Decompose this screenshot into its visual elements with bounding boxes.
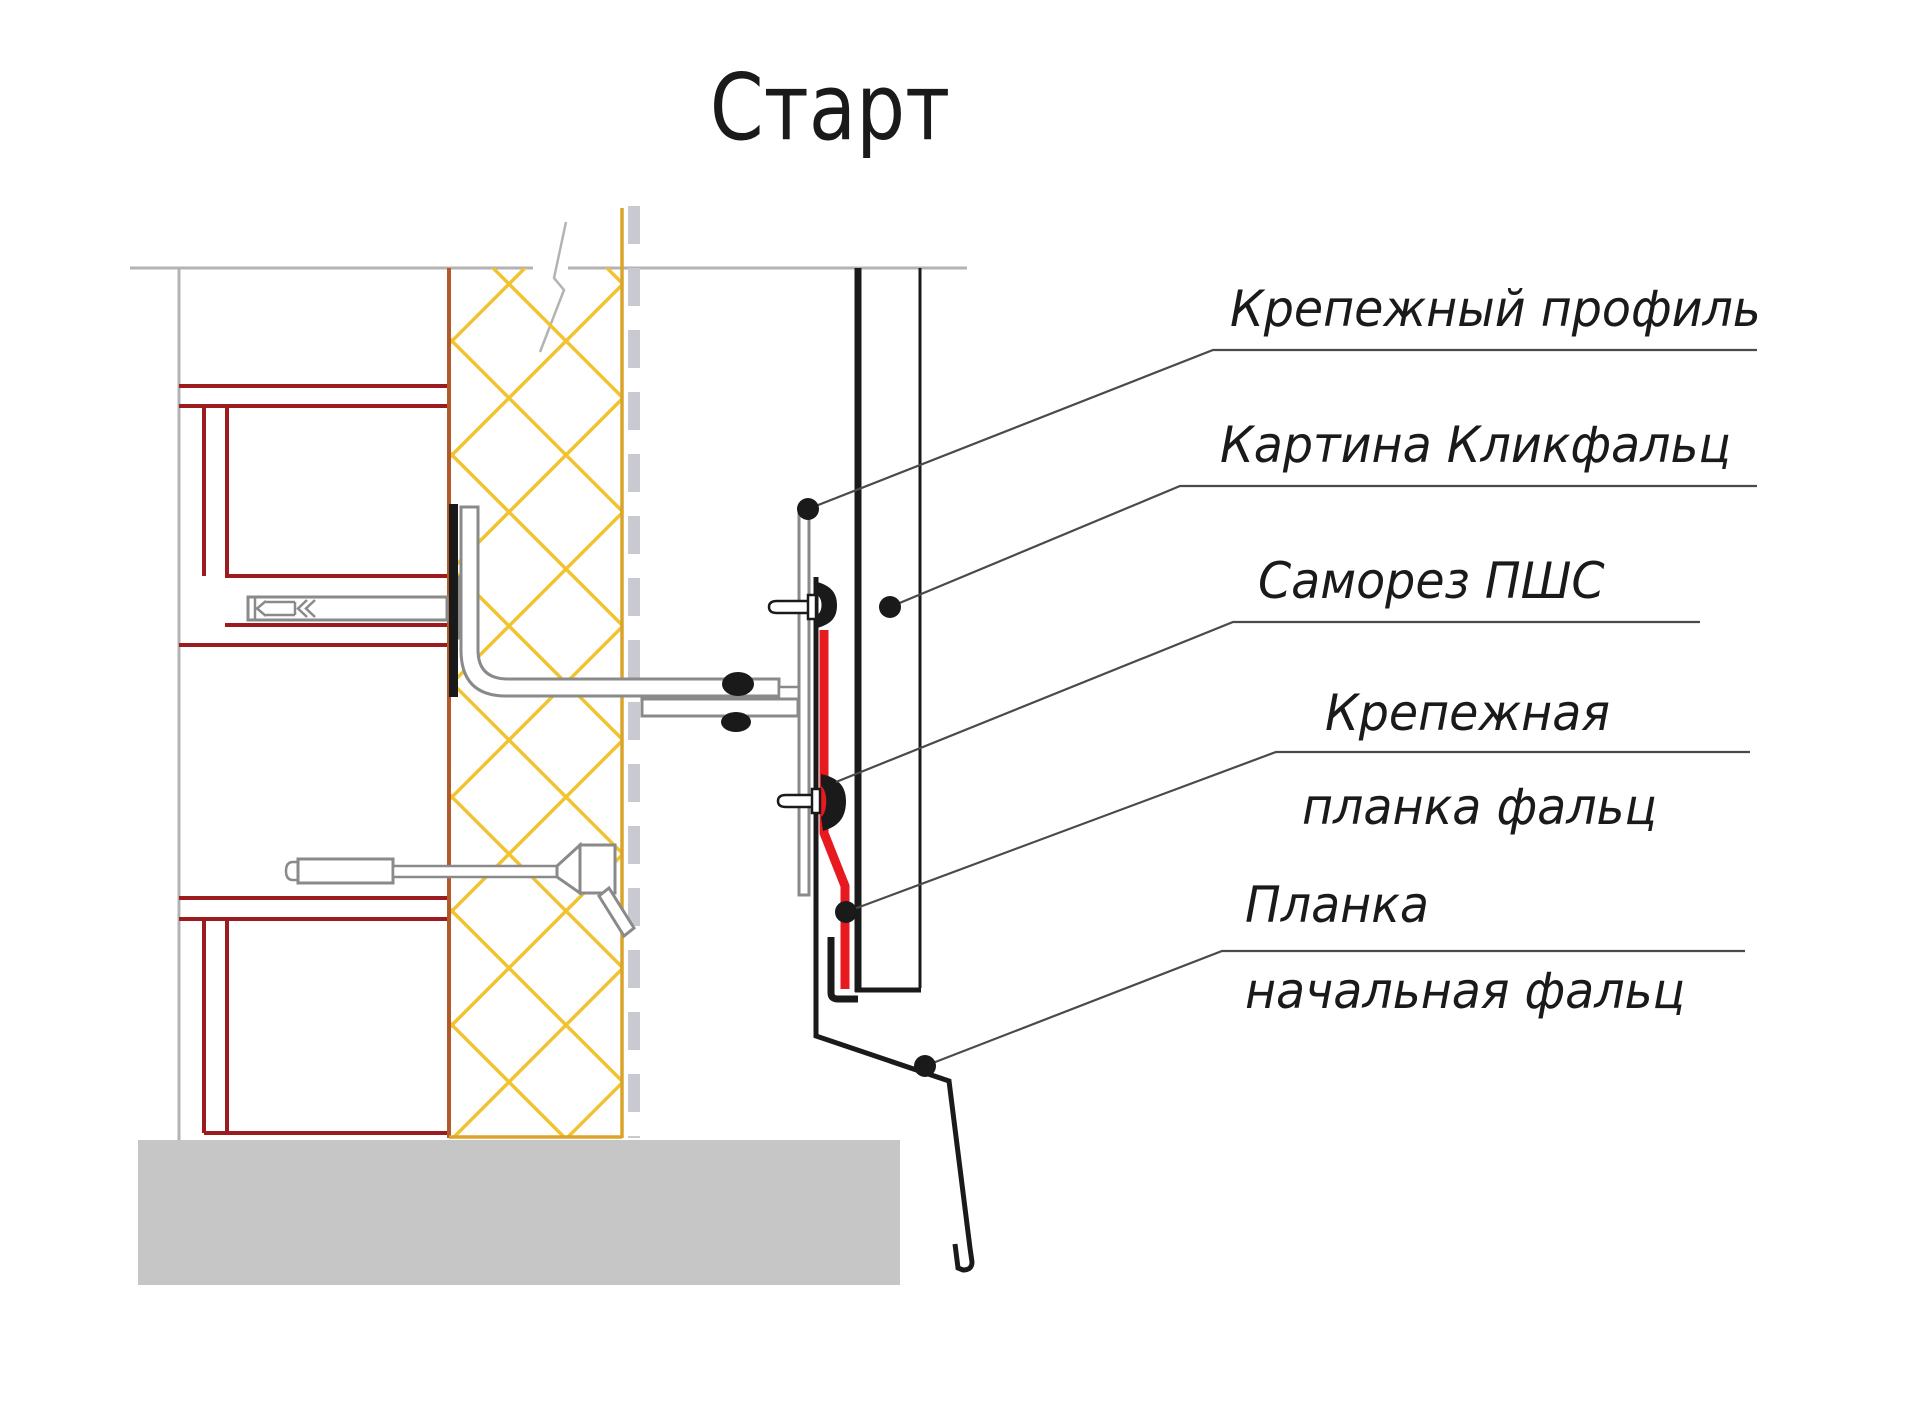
wall-framing [179,386,447,1133]
screw-bottom [778,774,846,831]
callout-starting-strip-line1: Планка [1245,876,1429,934]
bracket-extension [642,699,798,716]
section-detail-drawing [0,0,1920,1403]
foundation-base [138,1140,900,1285]
fastening-profile-channel [799,512,809,895]
mounting-bar [449,504,458,697]
callout-fastening-strip-line1: Крепежная [1325,684,1610,742]
detail-drawing-page: Старт Крепежный профиль Картина Кликфаль… [0,0,1920,1403]
callout-fastening-strip-line2: планка фальц [1302,778,1657,836]
insulation-hatch [449,268,622,1138]
bracket-connector [779,687,799,699]
callout-click-seam-panel: Картина Кликфальц [1220,416,1731,474]
anchor-top [248,577,478,638]
click-seam-panel [855,268,921,992]
callout-fastening-profile: Крепежный профиль [1230,280,1761,338]
callout-self-tapping-screw: Саморез ПШС [1258,552,1605,610]
callout-starting-strip-line2: начальная фальц [1245,962,1685,1020]
page-title: Старт [670,54,989,161]
